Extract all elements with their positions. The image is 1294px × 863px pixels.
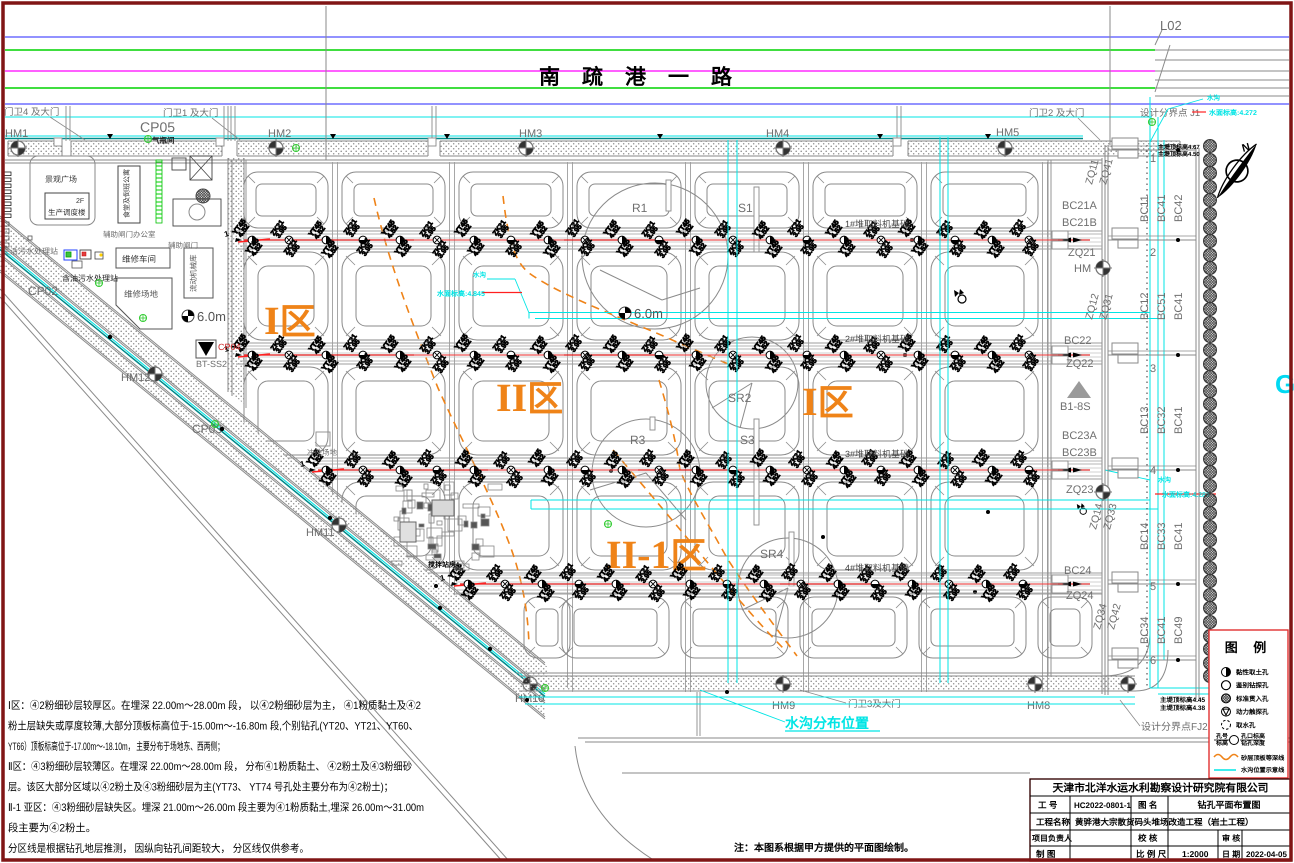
svg-text:L02: L02 xyxy=(1160,18,1182,33)
svg-text:比 例 尺: 比 例 尺 xyxy=(1136,849,1167,859)
svg-text:HC2022-0801-1: HC2022-0801-1 xyxy=(1074,801,1131,810)
svg-text:维修车间: 维修车间 xyxy=(122,254,156,264)
svg-text:门卫4 及大门: 门卫4 及大门 xyxy=(4,107,59,118)
svg-text:景观广场: 景观广场 xyxy=(45,175,77,184)
svg-text:水沟分布位置: 水沟分布位置 xyxy=(785,715,869,731)
svg-text:BC21B: BC21B xyxy=(1062,217,1097,229)
svg-text:BC22: BC22 xyxy=(1064,335,1092,347)
svg-text:R3: R3 xyxy=(630,433,646,447)
svg-text:2#堆取料机基础: 2#堆取料机基础 xyxy=(845,334,909,344)
svg-text:HM4: HM4 xyxy=(766,128,789,140)
svg-text:II-1区: II-1区 xyxy=(606,532,706,577)
svg-text:HM2: HM2 xyxy=(268,128,291,140)
svg-text:3: 3 xyxy=(1150,363,1156,375)
svg-text:水面标高:4.845: 水面标高:4.845 xyxy=(436,289,485,298)
svg-text:取水孔: 取水孔 xyxy=(1236,721,1256,729)
svg-text:B1-8S: B1-8S xyxy=(1060,401,1091,413)
svg-text:水沟: 水沟 xyxy=(1206,94,1221,102)
svg-text:分区线是根据钻孔地层推测， 因纵向钻孔间距较大， 分区线仅供: 分区线是根据钻孔地层推测， 因纵向钻孔间距较大， 分区线仅供参考。 xyxy=(8,842,309,855)
svg-text:水面标高:4.272: 水面标高:4.272 xyxy=(1208,108,1257,117)
svg-text:2022-04-05: 2022-04-05 xyxy=(1246,850,1287,859)
svg-text:冲洗场地: 冲洗场地 xyxy=(307,448,337,457)
svg-text:砂层顶板等深线: 砂层顶板等深线 xyxy=(1240,754,1285,762)
svg-text:CP04: CP04 xyxy=(218,342,241,352)
svg-text:BC41: BC41 xyxy=(1173,522,1185,550)
svg-text:BC13: BC13 xyxy=(1139,406,1151,434)
svg-text:Ⅱ区：④3粉细砂层较薄区。在埋深 22.00m～28.00m: Ⅱ区：④3粉细砂层较薄区。在埋深 22.00m～28.00m 段， 分布④1粉质… xyxy=(8,760,412,773)
svg-text:1:2000: 1:2000 xyxy=(1182,849,1209,859)
svg-text:HM: HM xyxy=(1074,263,1091,275)
svg-text:6.0m: 6.0m xyxy=(197,309,226,324)
svg-text:1#堆取料机基础: 1#堆取料机基础 xyxy=(845,219,909,229)
svg-text:水面标高:4.288: 水面标高:4.288 xyxy=(1161,490,1210,499)
svg-text:图 名: 图 名 xyxy=(1138,800,1157,810)
svg-text:工程名称: 工程名称 xyxy=(1036,817,1071,827)
svg-text:1: 1 xyxy=(1150,153,1156,165)
svg-text:主堤顶标高4.45: 主堤顶标高4.45 xyxy=(1160,696,1206,704)
svg-text:Ⅰ区：④2粉细砂层较厚区。在埋深 22.00m～28.00m: Ⅰ区：④2粉细砂层较厚区。在埋深 22.00m～28.00m 段， 以④2粉细砂… xyxy=(8,699,421,712)
svg-text:维修场地: 维修场地 xyxy=(124,289,159,299)
svg-text:生活污水处理站: 生活污水处理站 xyxy=(2,247,58,256)
svg-text:设计分界点FJ2: 设计分界点FJ2 xyxy=(1141,721,1208,733)
svg-text:6: 6 xyxy=(1150,655,1156,667)
svg-text:SR2: SR2 xyxy=(728,391,752,405)
svg-text:I区: I区 xyxy=(802,379,854,424)
svg-text:6.0m: 6.0m xyxy=(634,306,663,321)
svg-text:辅助闸门: 辅助闸门 xyxy=(168,241,198,250)
svg-text:制 图: 制 图 xyxy=(1036,849,1055,859)
svg-text:天津市北洋水运水利勘察设计研究院有限公司: 天津市北洋水运水利勘察设计研究院有限公司 xyxy=(1053,782,1269,795)
svg-text:S3: S3 xyxy=(740,433,755,447)
svg-text:II区: II区 xyxy=(496,375,563,420)
svg-text:南疏港一路: 南疏港一路 xyxy=(539,65,754,89)
svg-text:3#堆取料机基础: 3#堆取料机基础 xyxy=(845,449,909,459)
svg-text:HM11: HM11 xyxy=(306,527,335,539)
svg-text:YT66）顶板标高位于-17.00m～-18.10m， 主要: YT66）顶板标高位于-17.00m～-18.10m， 主要分布于场地东、西两侧… xyxy=(8,740,224,753)
svg-text:校 核: 校 核 xyxy=(1138,833,1158,843)
svg-text:2: 2 xyxy=(1150,247,1156,259)
svg-text:4: 4 xyxy=(1150,465,1156,477)
svg-text:BC42: BC42 xyxy=(1173,194,1185,222)
svg-text:Ⅱ-1 亚区：④3粉细砂层缺失区。埋深 21.00m～26.: Ⅱ-1 亚区：④3粉细砂层缺失区。埋深 21.00m～26.00m 段主要为④1… xyxy=(8,801,424,814)
svg-text:HM10: HM10 xyxy=(515,693,544,705)
svg-text:设计分界点 J1: 设计分界点 J1 xyxy=(1140,108,1200,119)
svg-text:HM9: HM9 xyxy=(772,700,795,712)
svg-text:BC32: BC32 xyxy=(1156,406,1168,434)
svg-text:主堤顶标高4.38: 主堤顶标高4.38 xyxy=(1160,704,1206,712)
svg-text:主堤顶标高4.50: 主堤顶标高4.50 xyxy=(1158,150,1200,158)
svg-text:BC41: BC41 xyxy=(1156,194,1168,222)
svg-text:注：本图系根据甲方提供的平面图绘制。: 注：本图系根据甲方提供的平面图绘制。 xyxy=(734,842,914,854)
svg-text:生产调度楼: 生产调度楼 xyxy=(48,208,86,217)
svg-text:CP02: CP02 xyxy=(28,284,58,298)
svg-text:孔口标高: 孔口标高 xyxy=(1241,732,1265,740)
svg-text:门卫2 及大门: 门卫2 及大门 xyxy=(1029,108,1084,119)
svg-text:BT-SS2: BT-SS2 xyxy=(196,359,227,369)
svg-text:HM3: HM3 xyxy=(519,128,542,140)
svg-text:项目负责人: 项目负责人 xyxy=(1032,834,1073,843)
svg-text:BC12: BC12 xyxy=(1139,292,1151,320)
svg-text:黏性取土孔: 黏性取土孔 xyxy=(1236,669,1269,677)
svg-text:I区: I区 xyxy=(264,298,316,343)
svg-text:ZQ23: ZQ23 xyxy=(1066,484,1094,496)
svg-text:4#堆取料机基础: 4#堆取料机基础 xyxy=(845,563,909,573)
svg-text:搅拌站房: 搅拌站房 xyxy=(428,560,456,569)
svg-text:BC14: BC14 xyxy=(1139,522,1151,550)
svg-text:BC41: BC41 xyxy=(1173,292,1185,320)
svg-text:5: 5 xyxy=(1150,581,1156,593)
svg-text:层。该区大部分区域以④2粉土及④3粉细砂层为主(YT73、: 层。该区大部分区域以④2粉土及④3粉细砂层为主(YT73、 YT74 号孔处主要… xyxy=(8,781,393,794)
svg-text:HM8: HM8 xyxy=(1027,700,1050,712)
svg-text:HM1: HM1 xyxy=(5,128,28,140)
svg-text:BC49: BC49 xyxy=(1173,616,1185,644)
svg-text:BC24: BC24 xyxy=(1064,565,1092,577)
svg-text:含油污水处理站: 含油污水处理站 xyxy=(62,274,118,283)
svg-text:BC21A: BC21A xyxy=(1062,200,1098,212)
svg-text:水沟: 水沟 xyxy=(1157,476,1172,484)
svg-text:BC51: BC51 xyxy=(1156,292,1168,320)
svg-text:HM5: HM5 xyxy=(996,127,1019,139)
svg-text:BC11: BC11 xyxy=(1139,195,1151,222)
svg-text:标准贯入孔: 标准贯入孔 xyxy=(1235,695,1269,703)
svg-text:门卫1 及大门: 门卫1 及大门 xyxy=(163,108,218,119)
svg-text:ZQ22: ZQ22 xyxy=(1066,358,1094,370)
svg-text:食堂及倒班公寓: 食堂及倒班公寓 xyxy=(123,169,131,218)
svg-text:R1: R1 xyxy=(632,201,648,215)
svg-text:工 号: 工 号 xyxy=(1038,800,1058,810)
svg-text:CP05: CP05 xyxy=(140,119,175,135)
svg-text:2F: 2F xyxy=(76,198,84,205)
svg-text:BC41: BC41 xyxy=(1156,616,1168,644)
svg-text:鉴别钻探孔: 鉴别钻探孔 xyxy=(1235,682,1269,690)
svg-text:SR4: SR4 xyxy=(760,547,784,561)
svg-text:日 期: 日 期 xyxy=(1222,850,1240,859)
svg-text:BC23B: BC23B xyxy=(1062,447,1097,459)
svg-text:主堤顶标高4.67: 主堤顶标高4.67 xyxy=(1158,143,1200,151)
svg-text:辅助闸门办公室: 辅助闸门办公室 xyxy=(103,230,156,239)
svg-text:BC41: BC41 xyxy=(1173,406,1185,434)
svg-text:BC23A: BC23A xyxy=(1062,430,1098,442)
svg-text:S1: S1 xyxy=(738,201,753,215)
svg-text:图 例: 图 例 xyxy=(1225,640,1273,655)
svg-text:水沟位置示意线: 水沟位置示意线 xyxy=(1240,766,1285,774)
svg-text:段主要为④2粉土。: 段主要为④2粉土。 xyxy=(8,821,96,834)
svg-text:流动机械库: 流动机械库 xyxy=(189,254,198,292)
svg-text:粉土层缺失或厚度较薄,大部分顶板标高位于-15.00m～-1: 粉土层缺失或厚度较薄,大部分顶板标高位于-15.00m～-16.80m 段,个别… xyxy=(8,719,418,732)
svg-text:HM12: HM12 xyxy=(121,372,150,384)
svg-text:气瓶间: 气瓶间 xyxy=(151,136,175,145)
svg-text:BC33: BC33 xyxy=(1156,522,1168,550)
svg-text:水沟: 水沟 xyxy=(472,271,487,279)
svg-text:动力触探孔: 动力触探孔 xyxy=(1236,708,1269,716)
svg-text:BC34: BC34 xyxy=(1139,616,1151,644)
svg-text:孔号: 孔号 xyxy=(1216,732,1228,740)
svg-text:黄骅港大宗散货码头堆场改造工程（岩土工程）: 黄骅港大宗散货码头堆场改造工程（岩土工程） xyxy=(1075,817,1254,827)
svg-text:ZQ24: ZQ24 xyxy=(1066,590,1094,602)
svg-text:ZQ21: ZQ21 xyxy=(1068,247,1096,259)
svg-text:审 核: 审 核 xyxy=(1222,834,1240,843)
svg-text:钻孔平面布置图: 钻孔平面布置图 xyxy=(1197,800,1260,810)
